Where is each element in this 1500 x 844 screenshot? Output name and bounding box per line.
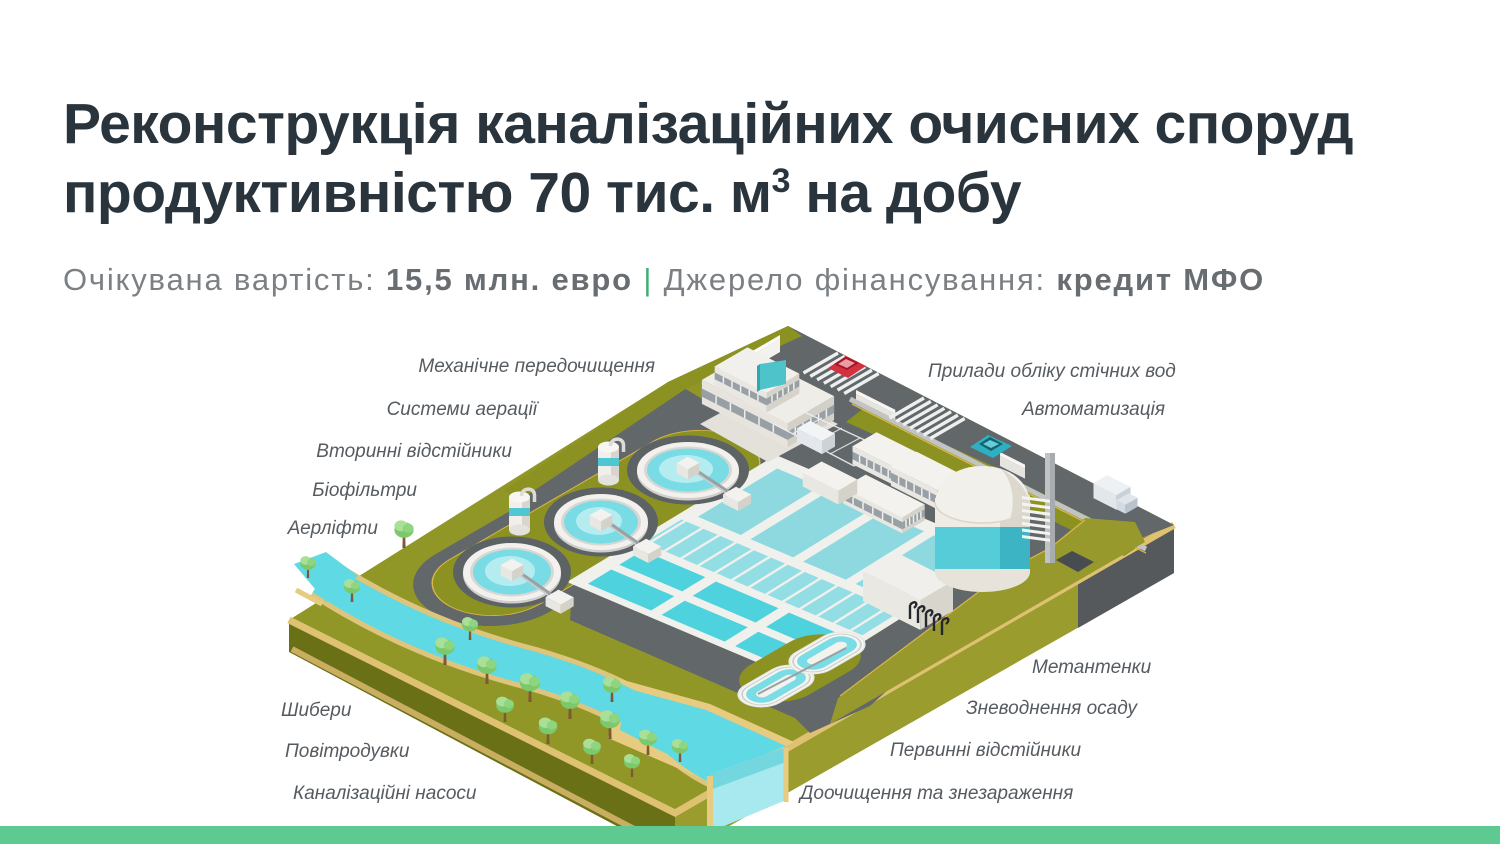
svg-text:Аерліфти: Аерліфти (287, 518, 379, 539)
svg-text:Повітродувки: Повітродувки (285, 741, 410, 762)
svg-text:Зневоднення осаду: Зневоднення осаду (966, 698, 1139, 719)
svg-text:Механічне передочищення: Механічне передочищення (418, 356, 655, 377)
svg-text:Автоматизація: Автоматизація (1021, 399, 1165, 420)
svg-text:Доочищення та знезараження: Доочищення та знезараження (798, 783, 1073, 804)
svg-text:Шибери: Шибери (281, 700, 352, 721)
svg-text:Прилади обліку стічних вод: Прилади обліку стічних вод (928, 361, 1176, 382)
svg-text:Метантенки: Метантенки (1032, 657, 1152, 678)
svg-text:Каналізаційні насоси: Каналізаційні насоси (293, 783, 477, 804)
svg-text:Вторинні відстійники: Вторинні відстійники (316, 441, 512, 462)
svg-text:Системи аерації: Системи аерації (387, 399, 540, 420)
svg-text:Біофільтри: Біофільтри (312, 480, 417, 501)
svg-text:Первинні відстійники: Первинні відстійники (890, 740, 1082, 761)
